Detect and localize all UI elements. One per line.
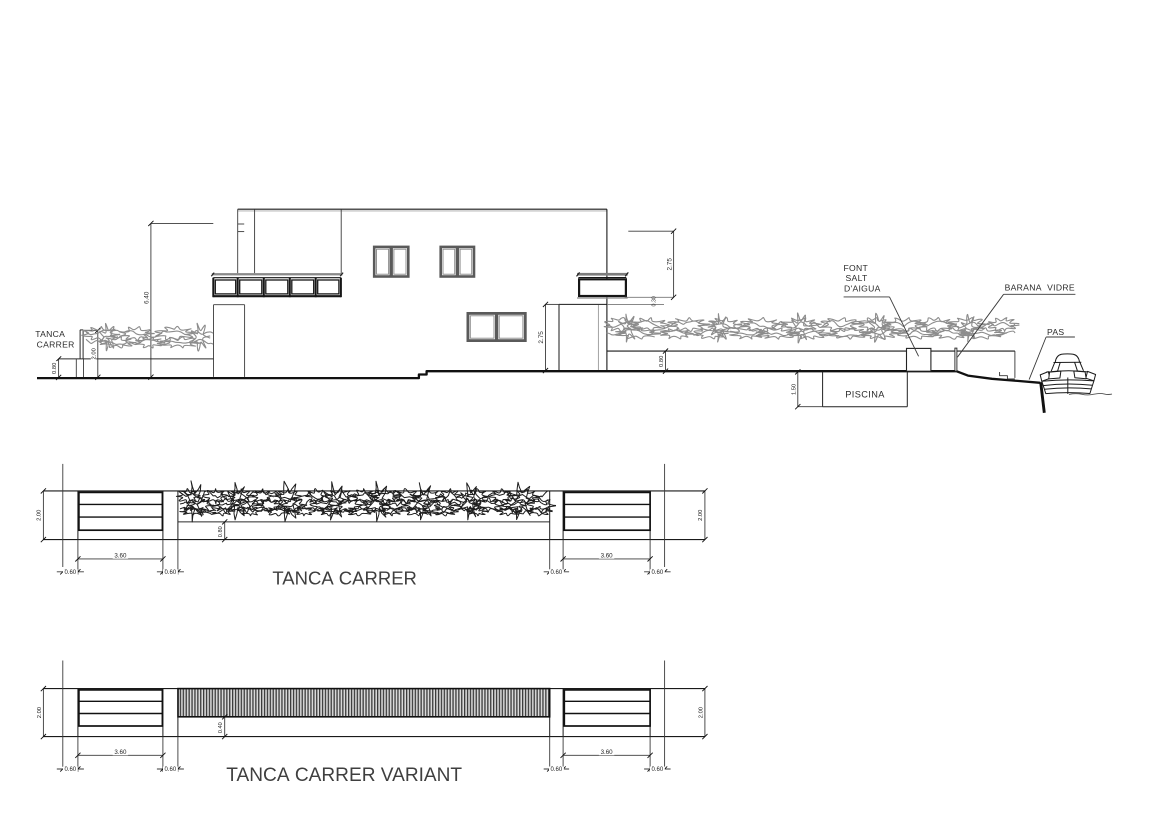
svg-text:2.00: 2.00 <box>91 348 97 359</box>
svg-text:TANCA CARRER: TANCA CARRER <box>272 568 417 588</box>
svg-text:0.60: 0.60 <box>652 767 664 773</box>
svg-text:D'AIGUA: D'AIGUA <box>844 283 881 293</box>
svg-text:CARRER: CARRER <box>37 339 75 349</box>
svg-text:3.60: 3.60 <box>114 749 127 756</box>
svg-text:TANCA: TANCA <box>35 329 65 339</box>
svg-text:0.60: 0.60 <box>551 767 563 773</box>
svg-text:0.60: 0.60 <box>165 767 177 773</box>
svg-text:PAS: PAS <box>1047 327 1064 337</box>
svg-text:3.60: 3.60 <box>601 553 614 560</box>
svg-text:FONT: FONT <box>844 263 869 273</box>
svg-text:0.30: 0.30 <box>652 296 658 306</box>
svg-text:1.50: 1.50 <box>791 384 797 395</box>
svg-text:2.00: 2.00 <box>37 707 43 718</box>
svg-text:BARANA VIDRE: BARANA VIDRE <box>1005 283 1075 293</box>
svg-text:6.40: 6.40 <box>143 291 150 304</box>
svg-text:0.80: 0.80 <box>659 356 665 367</box>
svg-text:3.60: 3.60 <box>114 553 127 560</box>
svg-text:TANCA CARRER VARIANT: TANCA CARRER VARIANT <box>226 764 462 786</box>
svg-text:2.00: 2.00 <box>37 510 43 521</box>
svg-text:0.80: 0.80 <box>218 526 224 537</box>
svg-text:2.75: 2.75 <box>667 258 674 271</box>
svg-text:2.00: 2.00 <box>698 707 704 718</box>
svg-text:0.60: 0.60 <box>551 570 563 576</box>
svg-text:0.60: 0.60 <box>165 570 177 576</box>
svg-text:0.40: 0.40 <box>218 722 224 733</box>
svg-text:0.60: 0.60 <box>64 570 76 576</box>
svg-text:0.60: 0.60 <box>652 570 664 576</box>
svg-text:SALT: SALT <box>846 273 869 283</box>
svg-text:2.00: 2.00 <box>698 510 704 521</box>
svg-text:0.60: 0.60 <box>64 767 76 773</box>
svg-text:PISCINA: PISCINA <box>845 390 885 400</box>
svg-text:2.75: 2.75 <box>538 331 545 344</box>
svg-text:0.80: 0.80 <box>52 363 58 374</box>
svg-text:3.60: 3.60 <box>601 749 614 756</box>
